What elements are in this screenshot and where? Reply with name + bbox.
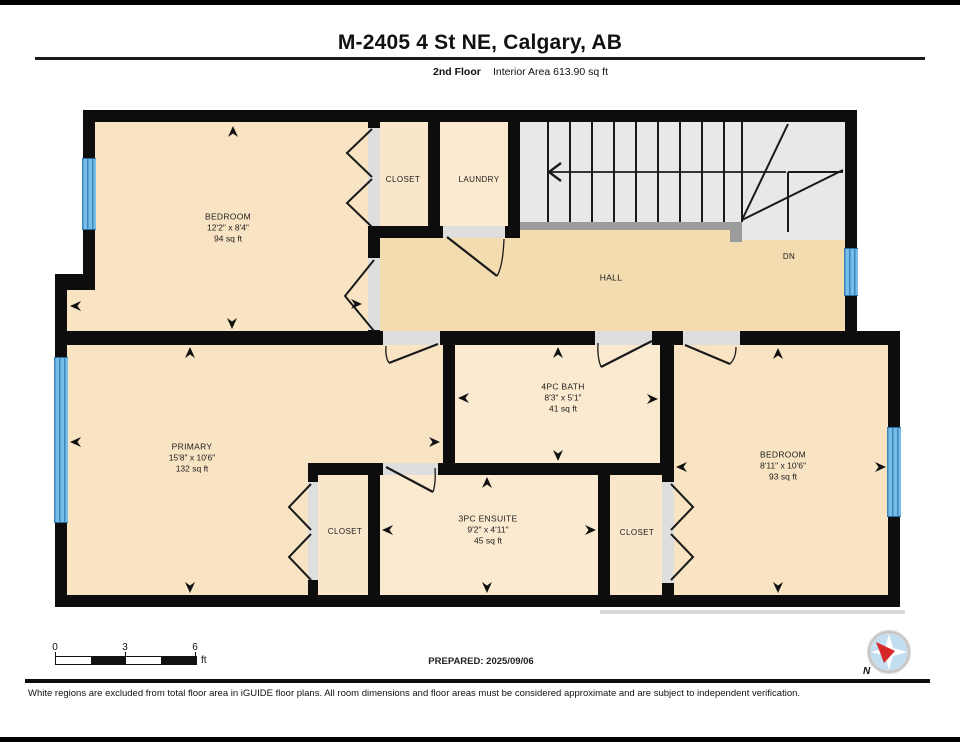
wall: [508, 122, 520, 238]
window: [82, 158, 96, 230]
door-threshold: [683, 331, 740, 345]
room-label-laundry: LAUNDRY: [459, 175, 500, 185]
room-fill-primary-upper: [67, 345, 443, 463]
bottom-border-bar: [0, 737, 960, 742]
room-label-hall: HALL: [600, 272, 622, 283]
door-threshold: [662, 482, 674, 583]
room-label-closet-top: CLOSET: [386, 175, 420, 185]
room-name: PRIMARY: [169, 441, 216, 452]
page-title: M-2405 4 St NE, Calgary, AB: [0, 31, 960, 55]
room-name: 3PC ENSUITE: [458, 513, 517, 524]
room-name: 4PC BATH: [541, 381, 584, 392]
compass-north-label: N: [863, 666, 870, 677]
door-threshold: [595, 331, 652, 345]
room-label-closet-right: CLOSET: [620, 528, 654, 538]
direction-label: DN: [783, 252, 795, 262]
floor-label: 2nd Floor: [433, 66, 481, 78]
room-label-closet-primary: CLOSET: [328, 527, 362, 537]
lower-level-outline: [600, 610, 905, 614]
wall: [443, 345, 455, 475]
door-threshold: [383, 463, 438, 475]
door-threshold: [443, 226, 505, 238]
door-threshold: [368, 128, 380, 226]
interior-area-label: Interior Area 613.90 sq ft: [493, 66, 608, 78]
door-threshold: [383, 331, 440, 345]
window: [887, 427, 901, 517]
room-label-bath: 4PC BATH 8'3" x 5'1" 41 sq ft: [541, 381, 584, 414]
floorplan-page: M-2405 4 St NE, Calgary, AB 2nd Floor In…: [0, 0, 960, 742]
room-area: 132 sq ft: [169, 464, 216, 475]
stairs-area: [520, 122, 845, 222]
stairs-dn-label: DN: [783, 252, 795, 262]
stairs-edge-strip: [520, 222, 732, 230]
door-threshold: [368, 258, 380, 330]
wall: [55, 595, 900, 607]
wall: [598, 475, 610, 595]
window: [844, 248, 858, 296]
room-name: BEDROOM: [205, 211, 251, 222]
room-name: CLOSET: [620, 528, 654, 538]
room-fill-bedroom-tl-nook: [67, 290, 95, 331]
room-dims: 9'2" x 4'11": [458, 524, 517, 535]
prepared-date-label: PREPARED: 2025/09/06: [381, 656, 581, 667]
wall: [308, 463, 674, 475]
door-threshold: [308, 482, 318, 580]
room-name: CLOSET: [386, 175, 420, 185]
wall: [368, 475, 380, 595]
scale-bar-segments: [55, 656, 197, 665]
room-label-bedroom-tl: BEDROOM 12'2" x 8'4" 94 sq ft: [205, 211, 251, 244]
stairs-winder-area: [742, 222, 845, 240]
room-dims: 15'8" x 10'6": [169, 452, 216, 463]
room-label-primary: PRIMARY 15'8" x 10'6" 132 sq ft: [169, 441, 216, 474]
wall: [428, 122, 440, 226]
room-name: HALL: [600, 272, 622, 283]
wall: [55, 331, 900, 345]
disclaimer-text: White regions are excluded from total fl…: [28, 688, 938, 699]
title-divider: [35, 57, 925, 60]
room-area: 94 sq ft: [205, 234, 251, 245]
room-dims: 8'3" x 5'1": [541, 392, 584, 403]
top-border-bar: [0, 0, 960, 5]
compass-icon: [863, 628, 915, 676]
wall: [660, 331, 674, 475]
wall: [845, 110, 857, 345]
room-area: 45 sq ft: [458, 536, 517, 547]
scale-unit-label: ft: [201, 655, 207, 666]
room-area: 41 sq ft: [541, 404, 584, 415]
room-name: CLOSET: [328, 527, 362, 537]
wall: [83, 110, 857, 122]
room-fill-primary-lower: [67, 463, 308, 595]
room-area: 93 sq ft: [760, 472, 806, 483]
footer-divider: [25, 679, 930, 683]
room-name: BEDROOM: [760, 449, 806, 460]
stairs-edge-strip: [730, 222, 742, 242]
window: [54, 357, 68, 523]
room-dims: 12'2" x 8'4": [205, 222, 251, 233]
room-dims: 8'11" x 10'6": [760, 460, 806, 471]
room-label-bedroom-right: BEDROOM 8'11" x 10'6" 93 sq ft: [760, 449, 806, 482]
room-name: LAUNDRY: [459, 175, 500, 185]
room-label-ensuite: 3PC ENSUITE 9'2" x 4'11" 45 sq ft: [458, 513, 517, 546]
